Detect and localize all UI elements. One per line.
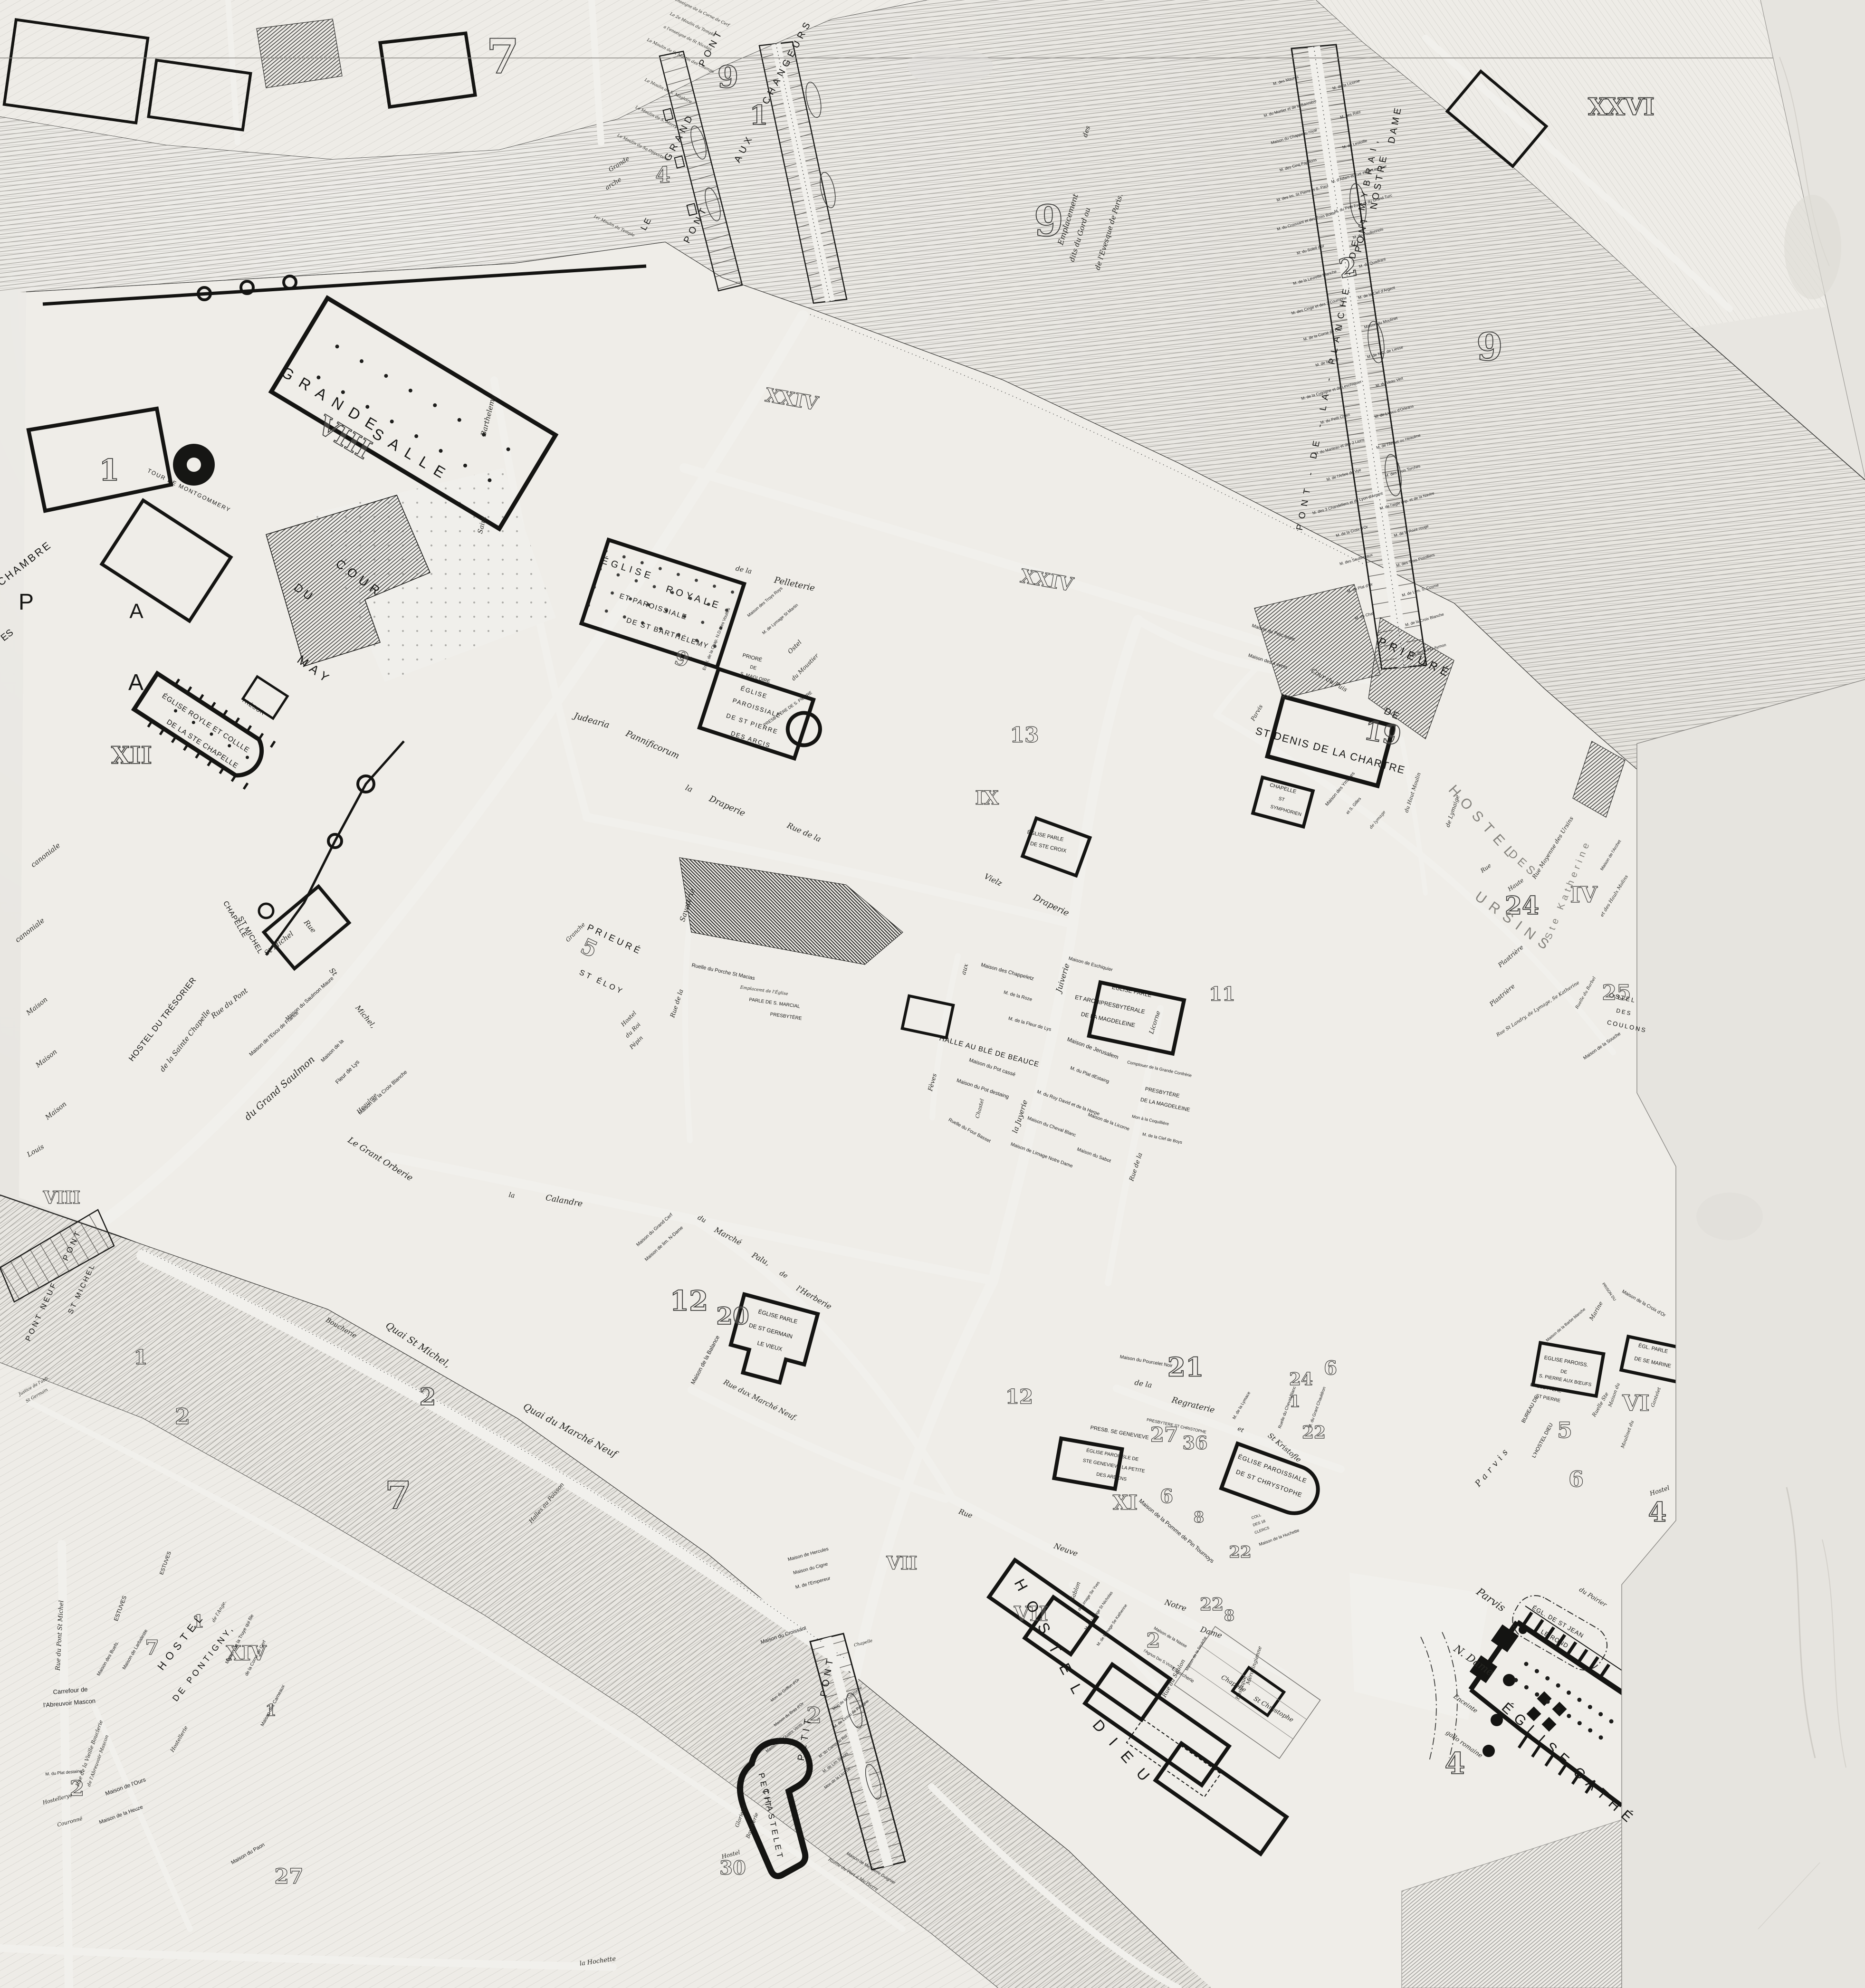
map-label: l'Herberie xyxy=(795,1284,832,1310)
map-label: 7 xyxy=(385,1476,411,1514)
map-label: Maison du xyxy=(1608,1382,1621,1407)
map-label: DIEU xyxy=(1090,1717,1161,1793)
map-label: VI xyxy=(1622,1392,1649,1414)
map-label: Maison de l'Archet xyxy=(1600,839,1622,871)
map-label: DES 18 xyxy=(1253,1520,1266,1528)
map-label: Maison des Carneaux xyxy=(260,1684,287,1728)
map-label: Gantelet xyxy=(1651,1387,1662,1408)
map-label: Maison xyxy=(25,996,48,1017)
map-label: Calandre xyxy=(545,1194,583,1208)
map-label: ROYALE xyxy=(665,584,723,612)
map-label: ÉGLISE PARLE xyxy=(1111,984,1152,998)
map-label: St xyxy=(328,967,338,977)
map-label: Chapelle xyxy=(853,1639,873,1648)
map-label: Plastrière xyxy=(1497,944,1525,968)
map-label: Ruelle du Four Basset xyxy=(947,1118,991,1144)
map-label: St Michel xyxy=(263,930,295,957)
map-label: CHAMBRE xyxy=(0,539,54,588)
map-label: HOSTEL xyxy=(1012,1577,1091,1708)
map-label: M. du Quadrant xyxy=(1358,257,1386,268)
map-label: Pépin xyxy=(629,1035,644,1050)
map-label: a l'enseigne de la Corne de Cerf xyxy=(669,0,730,28)
map-label: Rue dux Marché Neuf. xyxy=(722,1378,798,1422)
map-label: CATHÉ xyxy=(1570,1765,1640,1829)
map-label: Michel, xyxy=(354,1004,377,1029)
map-label: TRÉSOR xyxy=(240,697,266,717)
map-label: 1 xyxy=(134,1348,147,1367)
map-label: IX xyxy=(975,789,999,808)
map-label: M. du Plat d'Or xyxy=(1347,582,1374,593)
map-label: PRESBYTÈRE xyxy=(1145,1087,1180,1099)
map-label: M. du Soleil d'or xyxy=(1296,243,1325,255)
map-label: DE xyxy=(1560,1369,1567,1375)
map-label: Fèves xyxy=(928,1073,938,1092)
map-label: la xyxy=(684,784,694,794)
map-label: Justice de l'abb. xyxy=(18,1376,50,1397)
map-label: 4 xyxy=(1648,1499,1667,1526)
map-label: Maison des Chappeletz xyxy=(980,963,1034,982)
map-label: S. MAGLOIRE xyxy=(739,672,770,684)
map-label: Rue du Pont St Michel xyxy=(55,1600,65,1671)
map-label: Cour du Puis xyxy=(1310,668,1348,693)
map-label: Empl. de la Chap. N.D. des Voultes xyxy=(702,607,731,671)
map-label: ST ÉLOY xyxy=(578,969,625,996)
map-label: Quai St Michel, xyxy=(384,1320,452,1369)
map-label: et des Haulx Molins xyxy=(1600,874,1629,918)
map-label: M. du Plat dEstaing xyxy=(1070,1066,1110,1084)
map-label: ESTUVES xyxy=(113,1595,127,1622)
map-label: Maison des Buefs. xyxy=(96,1641,120,1677)
map-label: Juiverie xyxy=(1055,963,1071,994)
map-label: Rue de la xyxy=(786,822,822,843)
map-label: M. du Plat destaing xyxy=(45,1769,82,1777)
map-label: M. des Maures xyxy=(1272,75,1299,86)
map-label: VIII xyxy=(43,1189,80,1206)
map-label: EGLISE PAROISS. xyxy=(1544,1355,1588,1368)
map-label: Maison de la Souche xyxy=(1583,1032,1622,1061)
map-label: Notre xyxy=(1164,1598,1187,1613)
map-label: Mon du Griffon d'Or xyxy=(770,1678,800,1702)
map-label: Maison du Moulinet xyxy=(1364,316,1398,329)
map-label: LE ROND xyxy=(1540,1628,1570,1649)
map-label: DE STE CROIX xyxy=(1030,841,1067,854)
map-label: DE LA MAGDELEINE xyxy=(1140,1098,1190,1113)
map-label: M. des 4 Filz Aymon xyxy=(1411,642,1447,656)
map-label: DU xyxy=(292,582,316,604)
map-label: 2 xyxy=(420,1385,436,1409)
map-label: M. de Lymage St Martin xyxy=(762,603,799,635)
map-label: N. Dame xyxy=(1452,1644,1495,1678)
map-label: M. des Trois Torches xyxy=(1385,464,1421,478)
map-label: LE VIEUX xyxy=(756,1340,783,1352)
map-label: ÉGL. PARLE xyxy=(1638,1343,1668,1355)
map-label: 8 xyxy=(1194,1510,1204,1525)
map-label: DES ARDENS xyxy=(1096,1472,1127,1482)
map-label: M. du Veau Vert xyxy=(1376,376,1404,388)
map-label: 6 xyxy=(1569,1468,1584,1490)
map-label: XXIV xyxy=(1019,567,1074,595)
map-label: 22 xyxy=(1229,1544,1251,1560)
map-label: Enceinte xyxy=(1452,1693,1478,1714)
map-label: Rue xyxy=(303,919,317,935)
map-label: du xyxy=(697,1214,707,1224)
map-label: Mon à la Coquillière xyxy=(1131,1114,1169,1126)
map-label: M. de la Roze rouge xyxy=(1394,524,1429,537)
map-label: HOSTEL DU TRÉSORIER xyxy=(127,975,198,1062)
map-label: Hostellerye xyxy=(42,1792,73,1805)
map-label: 1er Moulin du Temple xyxy=(593,214,635,238)
map-label: de xyxy=(778,1270,789,1280)
map-label: Emplacemt de l'Église xyxy=(740,985,788,996)
map-label: ES xyxy=(0,628,15,643)
map-label: 11 xyxy=(1209,985,1235,1004)
map-label: DE ST GERMAIN xyxy=(748,1322,793,1339)
map-label: ÉGLISE xyxy=(601,556,655,582)
map-label: Maison de la xyxy=(320,1039,345,1063)
map-label: PETIT xyxy=(796,1715,813,1762)
map-label: Maison du Saulmon Maure xyxy=(285,976,335,1022)
map-label: Neuve xyxy=(1053,1542,1079,1558)
map-label: A xyxy=(129,601,143,622)
map-label: la Juyerie xyxy=(1012,1099,1029,1134)
map-label: CHANGEURS xyxy=(761,18,813,106)
map-label: Maison du Paon xyxy=(230,1842,266,1865)
map-label: 27 xyxy=(274,1866,303,1887)
map-label: St Kristofle xyxy=(1266,1432,1302,1464)
map-label: M. de la Clef de Boys xyxy=(1142,1132,1183,1145)
map-label: LE xyxy=(639,215,653,232)
map-label: Maison de Limage Notre Dame xyxy=(1010,1142,1073,1169)
map-label: Parvis xyxy=(1250,704,1264,722)
map-label: 2 xyxy=(175,1405,190,1427)
map-label: 21 xyxy=(1167,1354,1204,1380)
map-label: Fleur de Lys xyxy=(335,1059,361,1085)
map-label: 13 xyxy=(1010,725,1039,746)
map-label: CHAPELLE xyxy=(1269,783,1297,795)
map-label: M. des Im. St Pierre et S. Paul xyxy=(1276,183,1329,202)
map-label: Rue Moyenne des Ursins xyxy=(1531,815,1575,879)
map-label: M. de N.D. de Liesse xyxy=(1367,345,1403,359)
map-label: Judearia xyxy=(573,712,611,730)
map-label: Haute xyxy=(1507,877,1524,892)
map-label: M. de Lym. S. Cosme xyxy=(1401,583,1439,597)
map-label: PONT xyxy=(61,1228,83,1262)
map-label: et xyxy=(1236,1425,1244,1434)
map-label: Parvis xyxy=(1474,1587,1507,1614)
map-label: Boucherie xyxy=(745,1812,759,1839)
map-label: Ruelle Ste xyxy=(1591,1391,1609,1417)
map-label: PRESBYTÈRE xyxy=(1530,1383,1562,1394)
map-label: 8 xyxy=(1224,1608,1234,1623)
map-label: M. des Cinq Papillons xyxy=(1279,157,1317,172)
map-label: Draperie xyxy=(1032,893,1071,918)
map-label: Marché xyxy=(713,1226,743,1246)
map-label: canoniale xyxy=(14,917,46,944)
map-label: Maison des 4 vents xyxy=(1247,653,1288,670)
map-label: Maison du Cigne xyxy=(793,1562,828,1576)
map-label: 30 xyxy=(719,1859,746,1878)
map-label: CHASTELET xyxy=(762,1788,785,1861)
map-label: Quai du Marché Neuf xyxy=(522,1402,619,1459)
map-label: canoniale xyxy=(30,842,62,869)
map-label: M. de la Roze xyxy=(1003,990,1033,1003)
map-label: M. de la Croix d'Or xyxy=(1336,525,1368,537)
map-label: M. du Mortier et de la Bannière xyxy=(1263,99,1317,118)
map-label: Maison de la Heuze xyxy=(98,1805,143,1826)
map-label: M. de la Levrette Blanche xyxy=(1292,269,1337,286)
map-label: XXVI xyxy=(1588,95,1655,119)
map-label: M. des Trois Pistolliers xyxy=(1396,553,1435,568)
map-label: Maison des Ymages xyxy=(1325,771,1356,807)
map-label: COUR xyxy=(334,557,386,600)
map-label: de la xyxy=(735,565,753,575)
map-label: Licorne xyxy=(1148,1010,1162,1035)
map-label: St Chrystophe xyxy=(1253,1696,1294,1723)
map-label: Louis xyxy=(26,1143,45,1158)
map-label: ÉGLISE PARLE xyxy=(757,1309,798,1325)
map-label: Marine xyxy=(1588,1300,1604,1321)
map-label: du Grand Saulmon xyxy=(243,1054,316,1122)
map-label: 9 xyxy=(717,62,739,93)
map-label: aux xyxy=(961,963,970,975)
map-label: Grande xyxy=(608,156,631,173)
map-label: Rue xyxy=(957,1508,973,1520)
map-label: de lymage xyxy=(1369,810,1387,830)
map-label: DES xyxy=(1616,1008,1632,1017)
map-label: Couronné xyxy=(57,1816,83,1828)
map-label: Gloriette xyxy=(734,1804,747,1828)
map-label: de l'Ange. xyxy=(211,1600,228,1624)
map-label: Rue de la xyxy=(669,988,685,1018)
map-label: Maison xyxy=(44,1101,67,1121)
map-label: Ruelle du Port à Me Pierre xyxy=(827,1858,879,1892)
map-label: 36 xyxy=(1183,1434,1208,1452)
map-label: L'HOSTEL DIEU xyxy=(1531,1423,1554,1459)
map-label: Hostellerie xyxy=(170,1725,189,1753)
map-label: Maison de Hercules xyxy=(787,1547,829,1563)
map-label: BUREAU DE xyxy=(1521,1395,1540,1424)
map-label: Maison de la Licorne xyxy=(1087,1113,1130,1132)
map-label: Parvis xyxy=(1474,1445,1512,1488)
map-label: M. des Saultereaux xyxy=(1339,553,1373,566)
map-label: Maison du Porc espic xyxy=(1251,623,1296,642)
map-label: M. de l'Empereur xyxy=(795,1576,831,1590)
map-label: Maison de Eschiquier xyxy=(1068,956,1113,973)
map-label: ESTUVES xyxy=(159,1551,172,1576)
historic-map-canvas: 79149XXVI92VIII1XIIXXIVXXIV13IX91924IV25… xyxy=(0,0,1865,1988)
map-label: 12 xyxy=(1005,1387,1033,1407)
map-label: Maison du Cheval Blanc xyxy=(1027,1116,1077,1138)
map-label: Hostel xyxy=(1649,1485,1671,1497)
map-label: Maison du Pourcelet Noir xyxy=(1119,1355,1173,1368)
map-label: 7 xyxy=(486,33,519,80)
map-label: la Hochette xyxy=(579,1956,616,1967)
map-label: M. des 3 Chandeliers et du Lyon d'Argent xyxy=(1312,491,1383,515)
map-label: 6 xyxy=(1160,1487,1173,1506)
map-label: M. de la Croix Blanche xyxy=(1405,612,1444,627)
map-label: CLERCS xyxy=(1254,1526,1270,1535)
map-label: Rue du Pont xyxy=(210,987,249,1020)
map-label: Le Moulin de S. Magloire xyxy=(644,78,692,105)
map-label: DE xyxy=(749,665,757,671)
map-label: 1 xyxy=(99,456,119,485)
map-label: COULONS xyxy=(1607,1019,1647,1033)
map-label: Maison des Troys Roys xyxy=(746,586,783,618)
map-label: Ruelle du Porche St Macias xyxy=(691,963,755,982)
map-label: M. de la Lymace xyxy=(1232,1391,1252,1420)
map-label: Comptouer de la Grande Confrérie xyxy=(1127,1060,1192,1078)
map-label: Maison de la Balance xyxy=(690,1335,720,1386)
map-label: PRESB. SE GENEVIEVE xyxy=(1090,1425,1149,1441)
map-label: 1 xyxy=(750,102,768,129)
map-label: Rue de la xyxy=(1129,1152,1144,1182)
map-label: 4 xyxy=(655,164,670,186)
map-label: Rue xyxy=(1480,862,1492,874)
map-label: et S. Gilles xyxy=(1346,796,1362,815)
map-label: arche xyxy=(604,177,623,191)
map-label: M. de L'escu d'Orleans xyxy=(1374,404,1414,420)
map-label: Plastrière xyxy=(1489,983,1516,1007)
map-label: Boucherie xyxy=(325,1317,358,1339)
map-label: AUX xyxy=(733,133,756,164)
map-label: Vielz xyxy=(983,872,1003,888)
map-label: Maison du Pot destaing xyxy=(956,1078,1010,1100)
map-label: PONT xyxy=(682,204,710,245)
map-label: Maison de la Croix d'Or xyxy=(1621,1290,1666,1319)
map-label: Halles au Poisson xyxy=(528,1481,565,1524)
map-label: SYMPHORIEN xyxy=(1270,804,1302,817)
map-label: de l'Evesque de Paris. xyxy=(1094,193,1124,271)
map-label: Draperie xyxy=(708,794,746,818)
map-label: M. de la Clef d'Argent xyxy=(1358,286,1395,300)
map-label: M. de Lestoille xyxy=(1342,139,1368,150)
map-label: 6 xyxy=(1324,1359,1337,1378)
map-label: DE LA MAGDELEINE xyxy=(1081,1011,1136,1028)
map-label: Granche xyxy=(564,921,586,943)
map-label: XII xyxy=(111,744,152,767)
map-label: ÉGLISE xyxy=(740,685,768,700)
map-label: COLL xyxy=(1251,1513,1262,1520)
map-label: PONT NEUF xyxy=(25,1280,59,1342)
map-label: 9 xyxy=(672,648,692,671)
map-label: XI xyxy=(1113,1493,1138,1513)
map-label: DES ARCIS xyxy=(730,730,771,748)
map-label: 27 xyxy=(1150,1425,1178,1445)
map-label: MAY xyxy=(295,653,335,687)
map-label: GRAND xyxy=(663,111,696,162)
map-label: 7 xyxy=(145,1638,159,1658)
map-label: M. de l'Armet ou Heaulme xyxy=(1376,433,1421,450)
map-label: DE SE MARINE xyxy=(1634,1356,1671,1369)
map-label: Carrefour de xyxy=(53,1686,88,1695)
map-label: ÉGLISE xyxy=(1499,1700,1576,1772)
map-label: de la xyxy=(1134,1379,1152,1389)
map-label: PRESBYTÈRE xyxy=(770,1012,802,1021)
map-label: M. de la Licorne xyxy=(1332,79,1360,91)
map-label: Maison du Chappeau royal xyxy=(1271,128,1318,145)
map-label: Maison de l'Ours xyxy=(105,1777,146,1797)
map-label: M. de la Fleur de Lys xyxy=(1008,1016,1052,1032)
map-label: M. de l'Arbre de Vye xyxy=(1326,468,1361,482)
map-label: DAME xyxy=(1387,105,1403,144)
map-label: 12 xyxy=(670,1287,708,1315)
map-label: VII xyxy=(886,1554,917,1572)
map-labels-layer: 79149XXVI92VIII1XIIXXIVXXIV13IX91924IV25… xyxy=(0,0,1865,1988)
map-label: M. de l'aigle imp. et de la Navire xyxy=(1379,491,1435,511)
map-label: Pannificorum xyxy=(624,729,680,761)
map-label: TOUR DE MONTGOMMERY xyxy=(146,468,231,513)
map-label: 9 xyxy=(1476,328,1503,366)
map-label: Maison de la Croix Blanche xyxy=(358,1070,409,1116)
map-label: ST MICHEL xyxy=(67,1262,97,1315)
map-label: l'Abreuvoir Mascon xyxy=(43,1698,96,1709)
map-label: Sablon xyxy=(1069,1581,1081,1601)
map-label: 5 xyxy=(1557,1419,1572,1441)
map-label: 22 xyxy=(1200,1596,1224,1613)
map-label: Chastel xyxy=(975,1098,985,1119)
map-label: M. des Ratz xyxy=(1339,109,1361,119)
map-label: Maison de la Seulche xyxy=(1185,1636,1207,1672)
map-label: PONT xyxy=(819,1655,836,1698)
map-label: Regraterie xyxy=(1171,1396,1215,1415)
map-label: 4 xyxy=(1444,1749,1465,1778)
map-label: la xyxy=(508,1192,515,1199)
map-label: du Moustier xyxy=(791,653,820,682)
map-label: PRISON DU xyxy=(1601,1282,1616,1301)
map-label: Maison de Jerusalem xyxy=(1066,1036,1119,1060)
map-label: des xyxy=(1082,125,1092,138)
map-label: 2 xyxy=(1146,1631,1160,1651)
map-label: M. du Croissant et des Trois Boitte xyxy=(1277,211,1336,231)
map-label: Barthelemy xyxy=(480,394,497,437)
map-label: PRIORÉ xyxy=(742,653,763,663)
map-label: Maison de la Barbe blanche xyxy=(1545,1307,1586,1342)
map-label: SALLE xyxy=(370,425,455,485)
map-label: A xyxy=(128,671,143,694)
map-label: DE ST BARTHÉLEMY xyxy=(625,617,709,650)
map-label: 22 xyxy=(1302,1424,1326,1441)
map-label: ST PIERRE xyxy=(1535,1394,1561,1404)
map-label: M. du Chat xyxy=(1354,611,1374,620)
map-label: Maison du Croissant xyxy=(760,1625,807,1645)
map-label: Ostel xyxy=(787,639,803,655)
map-label: XXIV xyxy=(764,386,819,414)
map-label: Maison du Sabot xyxy=(1076,1147,1111,1164)
map-label: Moulinet du xyxy=(1621,1420,1635,1449)
map-label: Savaterie xyxy=(679,888,697,922)
map-label: P xyxy=(19,591,34,614)
map-label: Mérovingienne xyxy=(1245,1645,1262,1685)
map-label: Saint xyxy=(477,516,488,534)
map-label: Palu, xyxy=(751,1252,771,1267)
map-label: ST xyxy=(1278,797,1285,803)
map-label: Le Grant Orberie xyxy=(346,1136,414,1183)
map-label: Le Moulin de S. Merry xyxy=(635,105,678,129)
map-label: Maison xyxy=(35,1049,58,1069)
map-label: PARLE DE S. MARCIAL xyxy=(749,998,801,1010)
map-label: du Haut Moulin xyxy=(1404,772,1422,813)
map-label: 5 xyxy=(578,935,601,961)
map-label: du Poirier xyxy=(1578,1587,1607,1608)
map-label: Maison de Me Pierre Guignier xyxy=(846,1852,896,1885)
map-label: 20 xyxy=(716,1304,749,1328)
